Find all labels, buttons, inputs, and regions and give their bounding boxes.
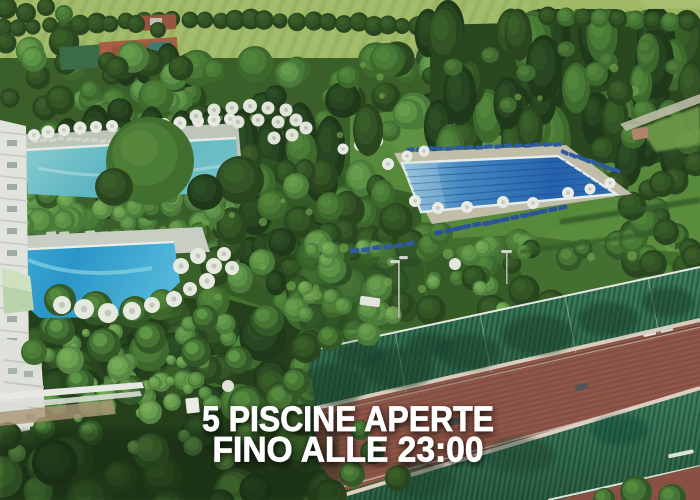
svg-text:FINO ALLE 23:00: FINO ALLE 23:00 [213, 430, 484, 470]
